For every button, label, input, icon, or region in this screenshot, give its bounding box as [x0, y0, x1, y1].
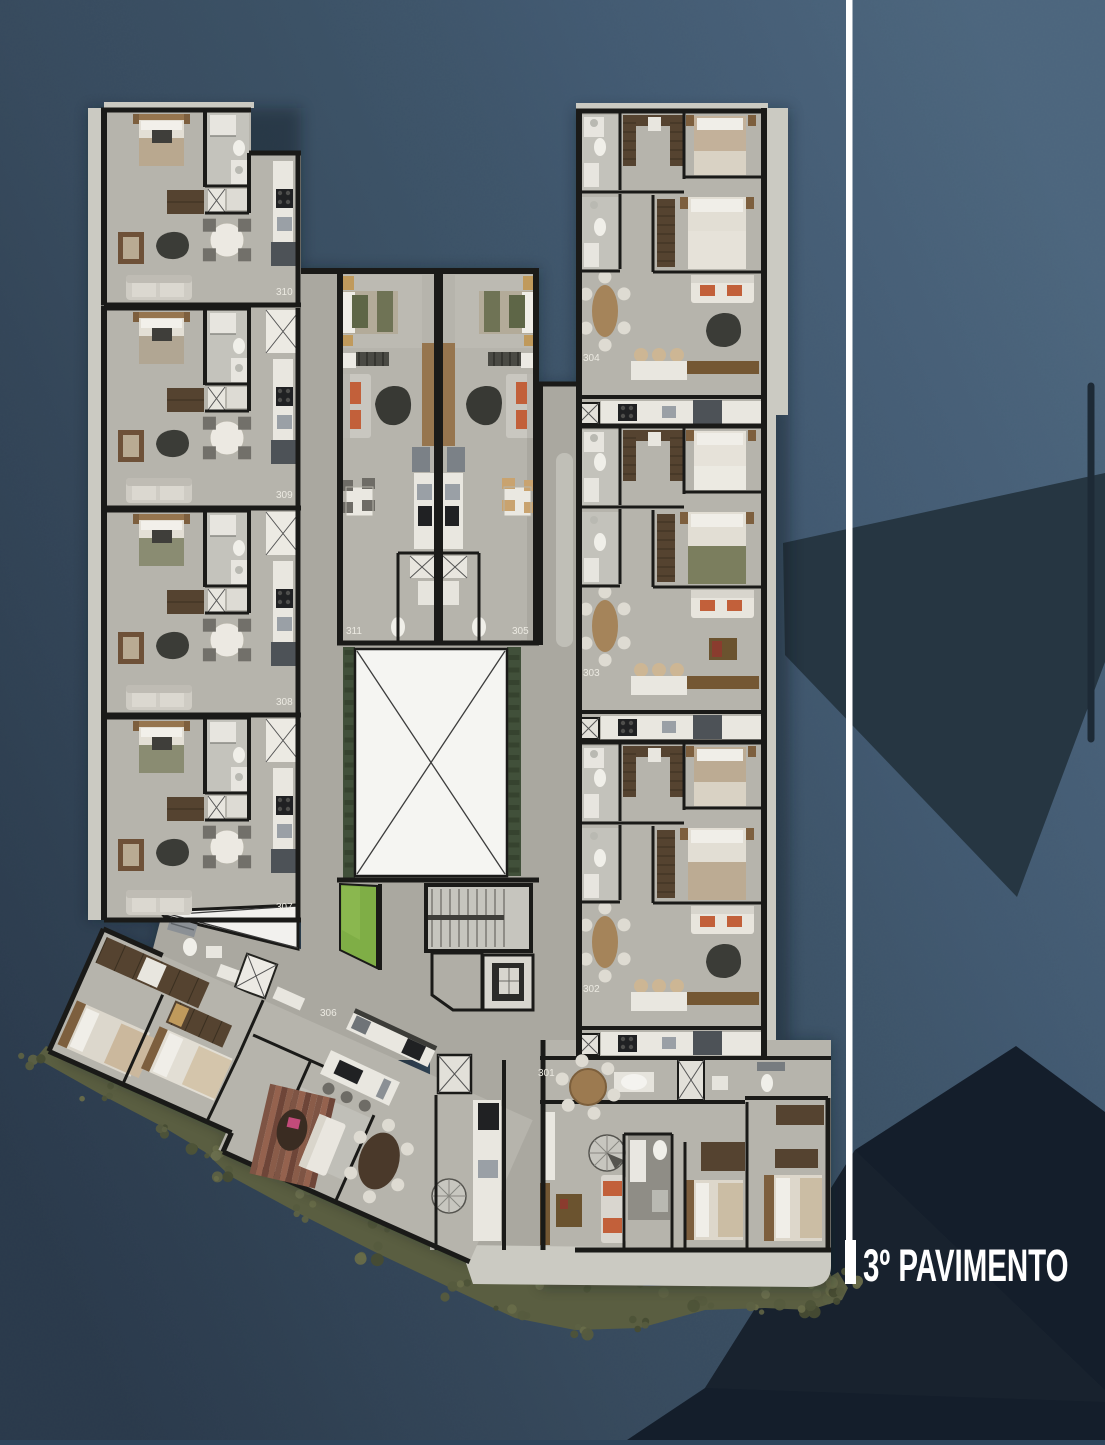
svg-text:305: 305 [512, 626, 529, 637]
svg-text:302: 302 [583, 984, 600, 995]
svg-text:306: 306 [320, 1008, 337, 1019]
svg-text:301: 301 [538, 1068, 555, 1079]
svg-text:304: 304 [583, 353, 600, 364]
svg-text:307: 307 [276, 902, 293, 913]
svg-text:308: 308 [276, 697, 293, 708]
svg-text:310: 310 [276, 287, 293, 298]
svg-text:3º PAVIMENTO: 3º PAVIMENTO [863, 1242, 1069, 1292]
svg-text:311: 311 [346, 626, 362, 637]
svg-text:309: 309 [276, 490, 293, 501]
svg-text:303: 303 [583, 668, 600, 679]
